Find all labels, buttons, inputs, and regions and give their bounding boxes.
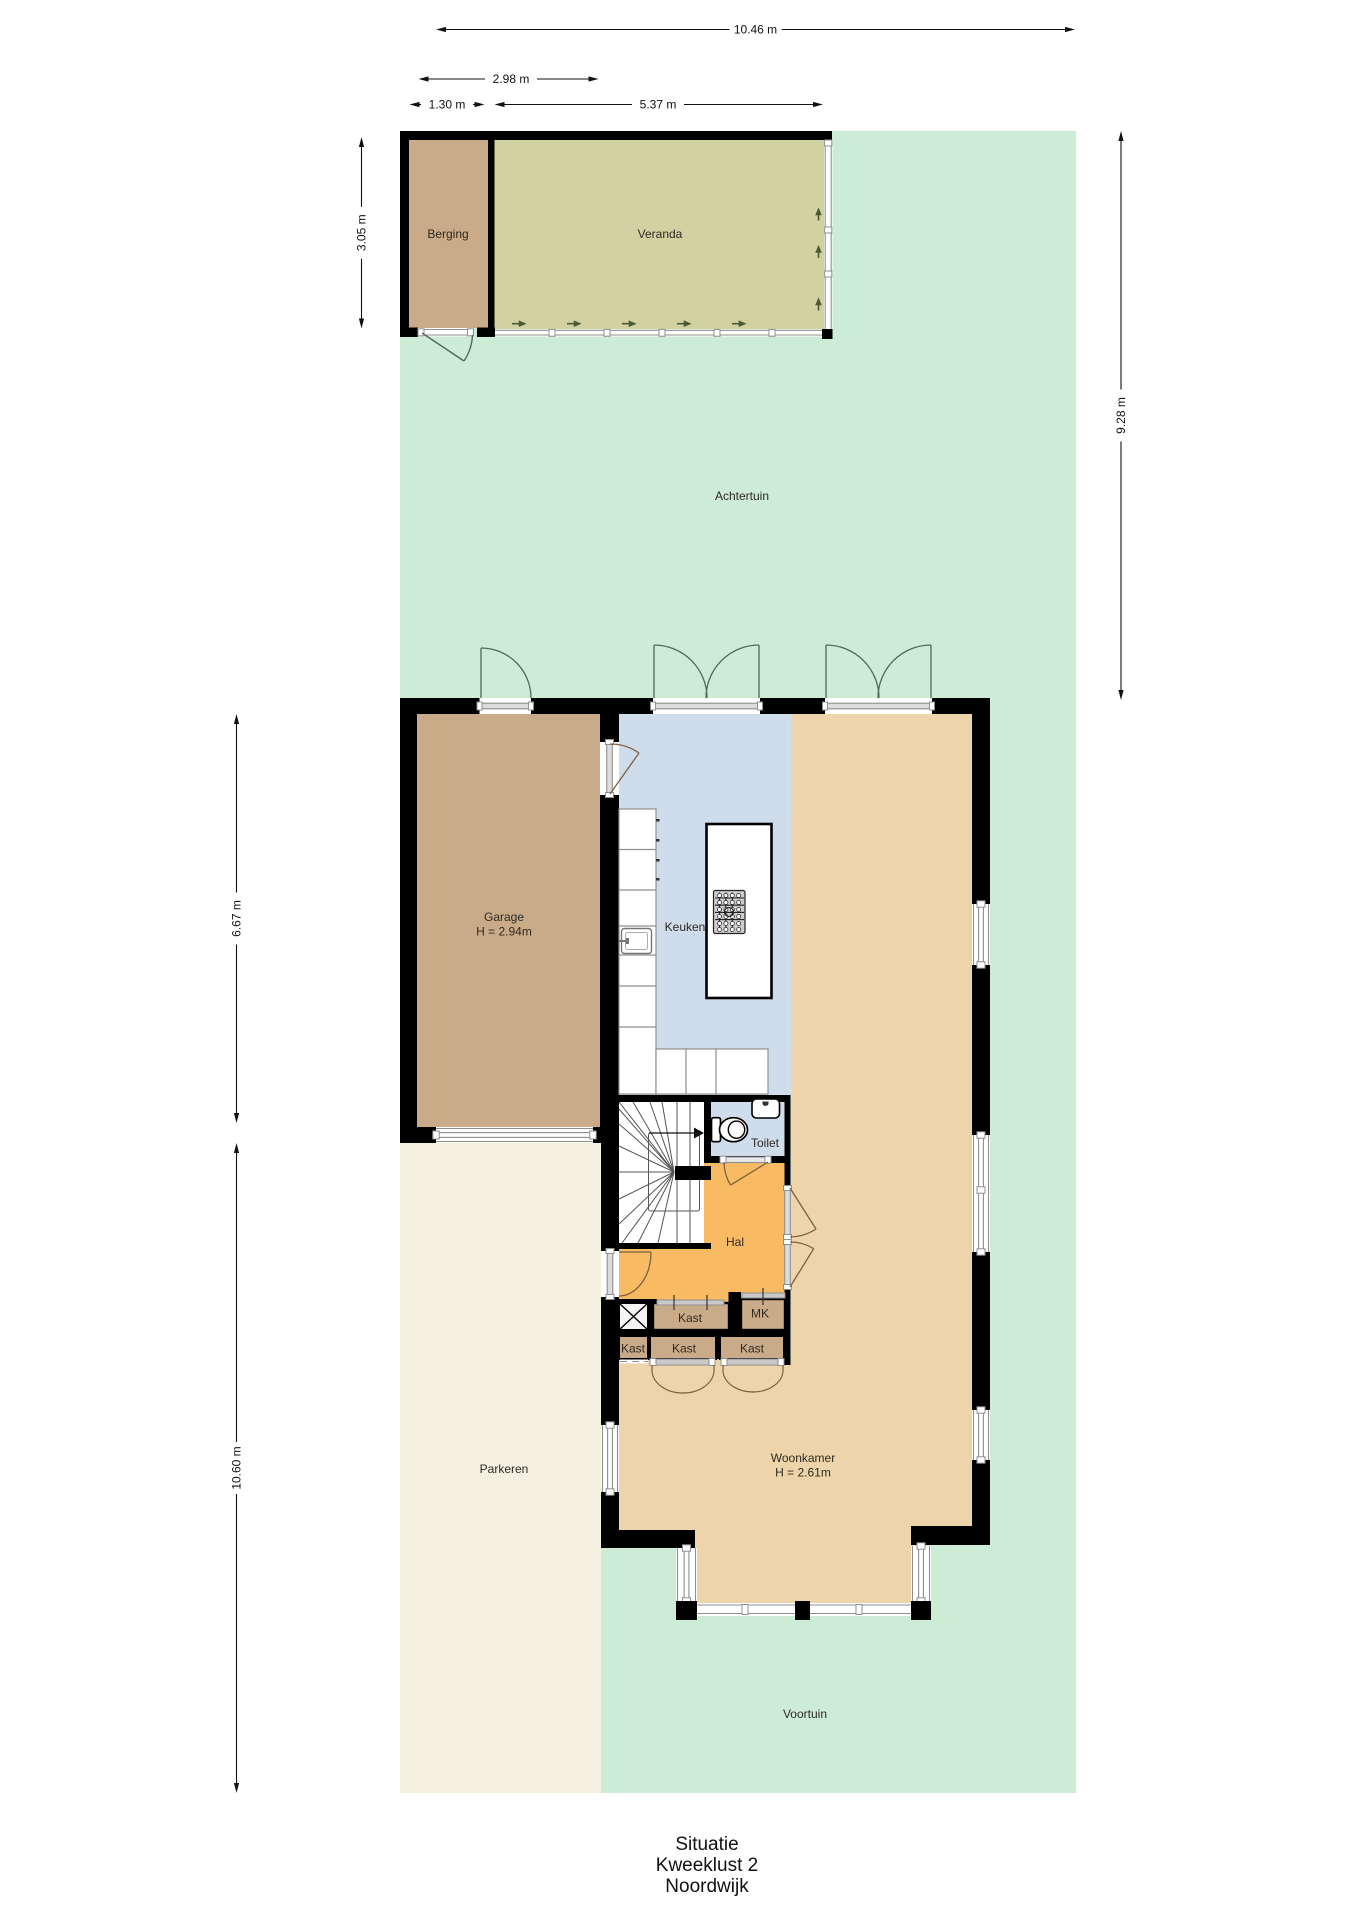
svg-text:H = 2.61m: H = 2.61m [775,1466,831,1480]
svg-text:Voortuin: Voortuin [783,1707,827,1721]
svg-text:5.37 m: 5.37 m [640,98,677,112]
svg-text:Hal: Hal [726,1235,744,1249]
svg-text:3.05 m: 3.05 m [355,214,369,251]
svg-text:MK: MK [751,1307,769,1321]
svg-text:Noordwijk: Noordwijk [665,1876,749,1897]
svg-text:Veranda: Veranda [638,227,683,241]
svg-text:6.67 m: 6.67 m [230,900,244,937]
svg-text:1.30 m: 1.30 m [429,98,466,112]
svg-text:Achtertuin: Achtertuin [715,489,769,503]
svg-text:Parkeren: Parkeren [480,1462,529,1476]
svg-text:Kast: Kast [678,1311,703,1325]
svg-text:Situatie: Situatie [675,1834,738,1855]
svg-text:H = 2.94m: H = 2.94m [476,925,532,939]
svg-text:Kast: Kast [621,1342,646,1356]
svg-text:Berging: Berging [427,227,468,241]
svg-text:Keuken: Keuken [665,920,706,934]
svg-text:Woonkamer: Woonkamer [771,1451,835,1465]
svg-text:Kast: Kast [740,1342,765,1356]
svg-text:9.28 m: 9.28 m [1114,397,1128,434]
svg-text:Garage: Garage [484,910,524,924]
svg-text:Kast: Kast [672,1342,697,1356]
svg-text:Kweeklust 2: Kweeklust 2 [656,1855,758,1876]
svg-text:2.98 m: 2.98 m [493,72,530,86]
svg-text:10.60 m: 10.60 m [230,1446,244,1489]
svg-text:10.46 m: 10.46 m [734,23,777,37]
svg-text:Toilet: Toilet [751,1136,780,1150]
